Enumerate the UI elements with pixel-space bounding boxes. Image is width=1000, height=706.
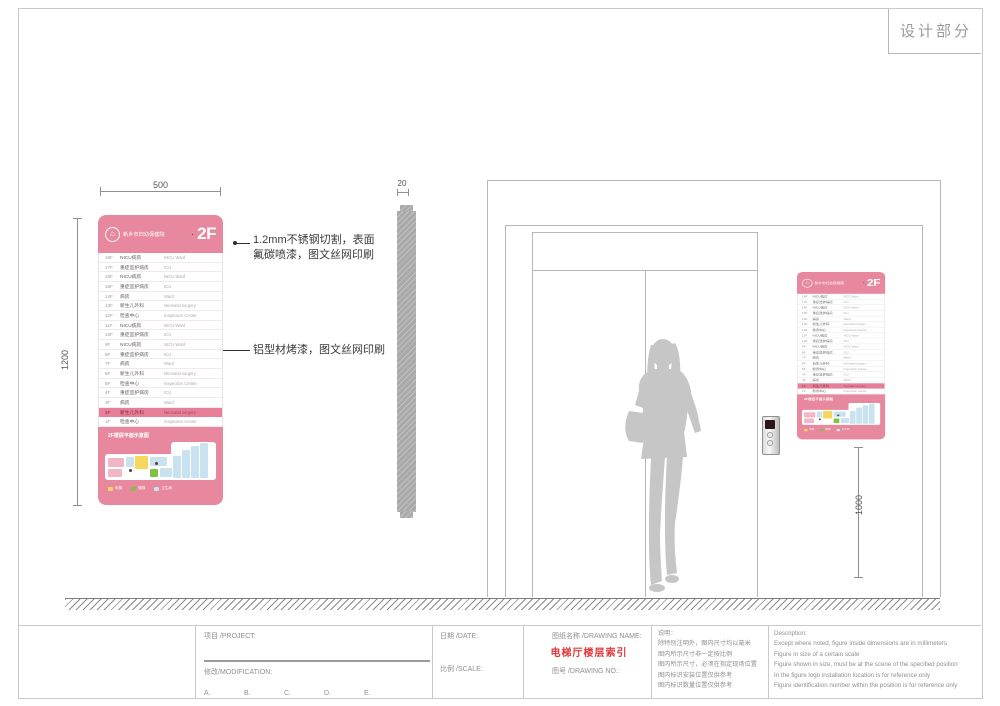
current-floor-label: 2F [197,224,216,244]
map-legend-item: 卫生间 [837,428,850,431]
map-legend-item: 楼梯 [820,428,830,431]
department-zh: 新生儿外科 [120,409,164,416]
legend-swatch [820,429,824,431]
plan-block [150,457,167,466]
dim-tick [854,447,863,448]
dim-install-height: 1000 [854,492,864,518]
note-line: 说明： [658,629,757,639]
floor-number: 2F [105,410,120,415]
department-en: Inspection Center [844,368,885,371]
dim-tick [73,505,82,506]
notes-zh: 说明：除特别注明外，图内尺寸均以毫米图内所示尺寸非一定按比例图内所示尺寸，必须在… [658,629,757,691]
dim-tick [220,187,221,196]
legend-swatch [837,429,841,431]
annotation-line: 1.2mm不锈钢切割，表面 [253,233,375,248]
header-separator-dot: · [863,280,865,286]
recess-line [505,225,922,226]
design-sheet: { "page": { "corner_title": "设计部分" }, "s… [0,0,1000,706]
plan-block [850,411,856,424]
ground-hatch [65,598,940,610]
department-en: Inspection Center [844,328,885,331]
plan-block [150,469,158,477]
floor-row: 17F 重症监护病房 ICU [99,263,222,273]
floor-number: 11F [105,323,120,328]
legend-label: 卫生间 [842,428,850,431]
legend-swatch [131,487,136,491]
department-zh: 病房 [813,378,844,382]
floor-number: 18F [802,295,813,298]
plan-dot [819,419,821,421]
floor-number: 2F [802,384,813,387]
department-en: Inspection Center [164,381,222,386]
sign-side-profile [397,211,416,512]
department-zh: 检查中心 [120,418,164,425]
floor-row: 11F NICU病房 NICU Ward [99,321,222,331]
drawing-name-label: 图纸名称 /DRAWING NAME: [552,631,642,641]
floor-number: 7F [802,356,813,359]
hospital-logo-icon: ⌂ [105,227,120,242]
map-legend: 电梯楼梯卫生间 [108,486,172,491]
department-en: ICU [844,351,885,354]
revision-mark: C. [284,690,324,697]
titleblock-divider [195,625,196,698]
plan-block [126,457,134,467]
department-en: ICU [844,312,885,315]
department-en: NICU Ward [844,295,885,298]
corner-box-line-v [888,9,889,54]
department-en: Inspection Center [164,313,222,318]
floor-number: 8F [802,351,813,354]
department-en: ICU [164,332,222,337]
department-zh: 重症监护病房 [120,351,164,358]
department-zh: NICU病房 [813,306,844,310]
notes-en: Description:Except where noted, figure i… [774,629,958,691]
revision-mark: D. [324,690,364,697]
note-line: 除特别注明外，图内尺寸均以毫米 [658,639,757,649]
floor-number: 14F [802,317,813,320]
department-en: Neonatal surgery [164,410,222,415]
titleblock-divider [432,625,433,698]
floor-row: 7F 病房 Ward [99,359,222,369]
plan-block [108,469,122,477]
floor-row: 15F 重症监护病房 ICU [99,282,222,292]
floor-number: 1F [802,390,813,393]
legend-label: 电梯 [809,428,814,431]
department-en: Ward [164,400,222,405]
note-line: In the figure logo installation location… [774,671,958,681]
department-en: Ward [844,356,885,359]
leader-line [236,243,250,244]
floor-number: 7F [105,361,120,366]
floor-row: 13F 新生儿外科 Neonatal surgery [99,301,222,311]
department-en: Neonatal surgery [164,371,222,376]
plan-block [182,450,190,478]
note-line: 图内标识安装位置仅供参考 [658,671,757,681]
department-en: NICU Ward [164,274,222,279]
map-legend-item: 电梯 [108,486,122,491]
drawing-no-label: 图号 /DRAWING NO.: [552,666,620,676]
department-en: Ward [844,317,885,320]
floor-number: 9F [105,342,120,347]
floor-number: 13F [802,323,813,326]
department-en: NICU Ward [844,334,885,337]
plan-block [823,411,832,419]
floor-number: 12F [802,328,813,331]
revision-mark: E. [364,690,404,697]
note-line: Figure shown in size, must be at the sce… [774,660,958,670]
annotation-aluminum: 铝型材烤漆，图文丝网印刷 [253,343,385,358]
floor-number: 10F [802,340,813,343]
note-line: Except where noted, figure inside dimens… [774,639,958,649]
legend-swatch [108,487,113,491]
department-zh: 新生儿外科 [120,302,164,309]
dim-panel-thickness: 20 [392,179,412,188]
department-en: Inspection Center [164,419,222,424]
wall-line [487,180,488,597]
floor-index-sign: ⌂ 新乡市妇幼保健院 · 2F 18F NICU病房 NICU Ward 17F… [797,272,885,439]
department-zh: NICU病房 [120,273,164,280]
department-en: ICU [844,340,885,343]
floor-row: 10F 重症监护病房 ICU [99,330,222,340]
annotation-steel: 1.2mm不锈钢切割，表面 氟碳喷漆，图文丝网印刷 [253,233,375,263]
floor-number: 6F [802,362,813,365]
door-frame-line [532,232,758,233]
floor-number: 4F [802,373,813,376]
floor-number: 17F [802,301,813,304]
plan-block [834,419,840,424]
sign-map-section: 2F楼层平面示意图 电梯楼梯卫生间 [797,394,885,439]
annotation-line: 氟碳喷漆，图文丝网印刷 [253,248,375,263]
floor-number: 3F [105,400,120,405]
note-line: 图内所示尺寸，必须在指定现场位置 [658,660,757,670]
call-panel-display [765,420,775,429]
date-label: 日期 /DATE: [440,631,478,641]
revision-mark: B. [244,690,284,697]
department-en: ICU [844,301,885,304]
department-zh: 病房 [120,293,164,300]
map-legend-item: 卫生间 [154,486,172,491]
header-separator-dot: · [191,229,194,239]
department-zh: NICU病房 [813,345,844,349]
plan-block [856,408,862,424]
plan-block [804,419,814,424]
plan-block [191,446,199,478]
plan-dot [129,469,132,472]
scale-label: 比例 /SCALE: [440,664,483,674]
department-en: NICU Ward [844,345,885,348]
recess-line [922,225,923,597]
department-zh: NICU病房 [813,333,844,337]
department-zh: 新生儿外科 [120,370,164,377]
floor-number: 6F [105,371,120,376]
floor-number: 8F [105,352,120,357]
wall-line [940,180,941,597]
floor-number: 17F [105,265,120,270]
map-title: 2F楼层平面示意图 [108,432,149,439]
floor-row: 1F 检查中心 Inspection Center [99,417,222,427]
department-zh: 病房 [813,317,844,321]
floor-row: 3F 病房 Ward [99,398,222,408]
note-line: Description: [774,629,958,639]
department-zh: 重症监护病房 [120,264,164,271]
plan-dot [155,462,158,465]
map-legend-item: 楼梯 [131,486,145,491]
floor-row: 9F NICU病房 NICU Ward [99,340,222,350]
floor-number: 16F [802,306,813,309]
dim-line-height [77,218,78,505]
department-en: NICU Ward [164,255,222,260]
department-zh: 新生儿外科 [813,384,844,388]
titleblock-divider [768,625,769,698]
department-zh: 重症监护病房 [813,350,844,354]
department-en: Neonatal surgery [164,303,222,308]
department-en: NICU Ward [844,306,885,309]
department-zh: NICU病房 [120,322,164,329]
legend-swatch [154,487,159,491]
floor-list: 18F NICU病房 NICU Ward 17F 重症监护病房 ICU 16F … [98,253,223,427]
map-legend: 电梯楼梯卫生间 [804,428,849,431]
hospital-name: 新乡市妇幼保健院 [123,231,165,238]
department-zh: 重症监护病房 [813,311,844,315]
department-zh: 新生儿外科 [813,361,844,365]
dim-tick [100,187,101,196]
plan-block [817,412,823,418]
floor-number: 4F [105,390,120,395]
department-en: ICU [164,352,222,357]
department-zh: 病房 [120,399,164,406]
floor-row: 12F 检查中心 Inspection Center [99,311,222,321]
note-line: Figure identification number within the … [774,681,958,691]
current-floor-label: 2F [867,277,880,289]
note-line: 图内所示尺寸非一定按比例 [658,650,757,660]
project-label: 项目 /PROJECT: [204,631,256,641]
department-en: ICU [844,373,885,376]
corner-box-line-h [888,53,981,54]
floor-index-sign: ⌂ 新乡市妇幼保健院 · 2F 18F NICU病房 NICU Ward 17F… [98,215,223,505]
department-zh: 检查中心 [813,389,844,393]
department-zh: 重症监护病房 [813,300,844,304]
sign-map-section: 2F楼层平面示意图 电梯楼梯卫生间 [98,427,223,505]
plan-dot [837,415,839,417]
department-zh: 重症监护病房 [813,339,844,343]
floor-number: 16F [105,274,120,279]
sheet-section-title: 设计部分 [892,20,980,41]
department-en: Ward [844,379,885,382]
door-frame-line [757,232,758,597]
department-en: Neonatal surgery [844,323,885,326]
department-en: ICU [164,284,222,289]
floor-number: 15F [105,284,120,289]
revision-mark: A. [204,690,244,697]
floor-row: 6F 新生儿外科 Neonatal surgery [99,369,222,379]
department-zh: 新生儿外科 [813,322,844,326]
floor-row: 5F 检查中心 Inspection Center [99,379,222,389]
department-zh: 重症监护病房 [120,331,164,338]
sign-header: ⌂ 新乡市妇幼保健院 · 2F [797,272,885,294]
department-en: Ward [164,294,222,299]
dim-tick [408,189,409,196]
revision-marks: A.B.C.D.E. [204,682,424,700]
floor-number: 9F [802,345,813,348]
legend-label: 楼梯 [138,486,145,491]
modification-rule [204,660,430,662]
titleblock-line [18,625,981,626]
floor-row: 14F 病房 Ward [99,292,222,302]
legend-label: 楼梯 [825,428,830,431]
plan-block [173,456,181,478]
floor-number: 13F [105,303,120,308]
department-en: NICU Ward [164,342,222,347]
department-zh: 检查中心 [120,380,164,387]
floor-row: 18F NICU病房 NICU Ward [99,253,222,263]
call-button-up[interactable] [767,432,773,438]
plan-block [200,443,208,478]
plan-block [869,404,875,424]
department-zh: 重症监护病房 [120,389,164,396]
note-line: 图内标识数量位置仅供参考 [658,681,757,691]
floor-row: 16F NICU病房 NICU Ward [99,272,222,282]
floor-row: 2F 新生儿外科 Neonatal surgery [99,408,222,418]
note-line: Figure in size of a certain scale [774,650,958,660]
floor-number: 14F [105,294,120,299]
elevator-call-panel[interactable] [762,416,780,455]
floor-row: 8F 重症监护病房 ICU [99,350,222,360]
legend-label: 卫生间 [161,486,172,491]
floor-number: 3F [802,379,813,382]
department-zh: 重症监护病房 [813,373,844,377]
department-en: ICU [164,390,222,395]
titleblock-divider [523,625,524,698]
floor-number: 15F [802,312,813,315]
plan-block [160,468,172,477]
floor-number: 12F [105,313,120,318]
plan-block [804,412,815,417]
legend-swatch [804,429,808,431]
floor-plan-map [802,403,880,426]
floor-number: 11F [802,334,813,337]
dim-tick [73,218,82,219]
floor-plan-map [105,442,216,482]
department-en: Neonatal surgery [844,362,885,365]
map-legend-item: 电梯 [804,428,814,431]
floor-number: 5F [802,368,813,371]
department-en: NICU Ward [164,323,222,328]
plan-block [108,458,124,467]
department-en: Inspection Center [844,390,885,393]
dim-sign-height: 1200 [60,347,70,373]
plan-block [863,405,869,423]
dim-line-width [100,191,221,192]
floor-number: 18F [105,255,120,260]
hospital-logo-icon: ⌂ [802,279,813,288]
department-zh: 病房 [120,360,164,367]
department-zh: NICU病房 [120,341,164,348]
dim-sign-width: 500 [100,180,221,190]
floor-number: 1F [105,419,120,424]
department-en: ICU [164,265,222,270]
department-en: Ward [164,361,222,366]
dim-tick [854,577,863,578]
department-zh: 检查中心 [813,328,844,332]
sign-side-profile-tab [400,511,413,518]
plan-block [135,456,148,469]
plan-block [834,412,846,417]
floor-row: 4F 重症监护病房 ICU [99,388,222,398]
department-zh: 检查中心 [813,367,844,371]
floor-number: 10F [105,332,120,337]
wall-line [487,180,940,181]
recess-line [505,225,506,597]
map-title: 2F楼层平面示意图 [804,397,833,401]
hospital-name: 新乡市妇幼保健院 [815,281,844,285]
department-zh: 病房 [813,356,844,360]
department-zh: 重症监护病房 [120,283,164,290]
floor-number: 5F [105,381,120,386]
call-button-down[interactable] [767,440,773,446]
department-zh: NICU病房 [120,254,164,261]
floor-list: 18F NICU病房 NICU Ward 17F 重症监护病房 ICU 16F … [797,294,885,394]
department-zh: 检查中心 [120,312,164,319]
person-silhouette [605,335,715,600]
modification-label: 修改/MODIFICATION: [204,667,272,677]
legend-label: 电梯 [115,486,122,491]
drawing-name-value: 电梯厅楼层索引 [530,644,648,659]
titleblock-divider [651,625,652,698]
dim-tick [397,189,398,196]
door-frame-line [532,232,533,597]
plan-block [841,418,849,423]
department-en: Neonatal surgery [844,384,885,387]
department-zh: NICU病房 [813,294,844,298]
sign-header: ⌂ 新乡市妇幼保健院 · 2F [98,215,223,253]
